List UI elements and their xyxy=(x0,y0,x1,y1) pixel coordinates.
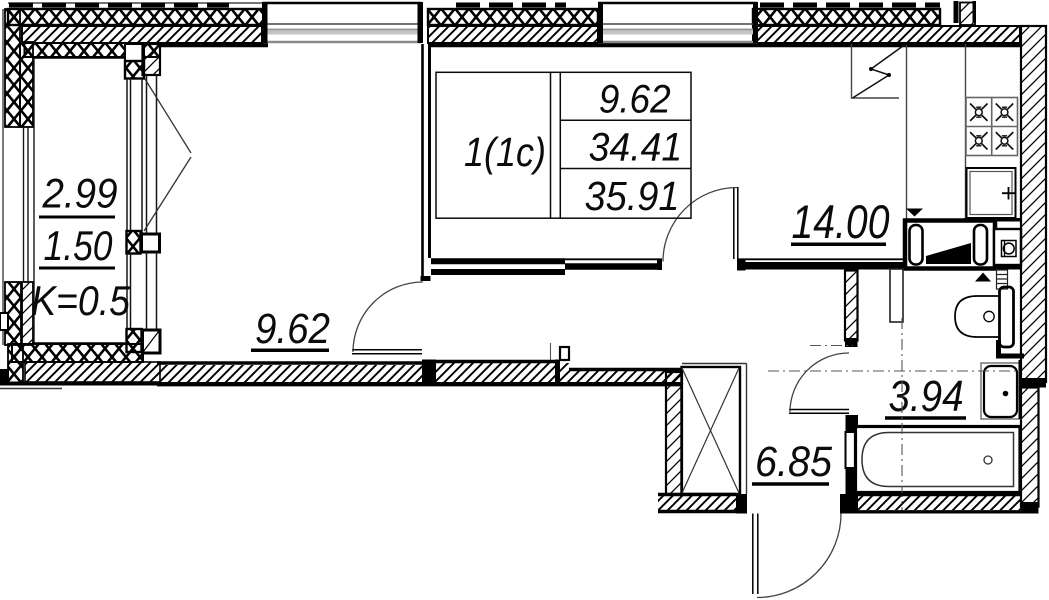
svg-text:9.62: 9.62 xyxy=(599,78,671,122)
svg-text:34.41: 34.41 xyxy=(589,126,683,170)
svg-text:K=0.5: K=0.5 xyxy=(31,277,131,324)
svg-text:14.00: 14.00 xyxy=(792,195,890,248)
svg-text:9.62: 9.62 xyxy=(255,305,330,353)
svg-text:6.85: 6.85 xyxy=(755,438,833,486)
svg-text:1(1c): 1(1c) xyxy=(464,129,546,175)
svg-text:2.99: 2.99 xyxy=(42,170,118,217)
svg-text:35.91: 35.91 xyxy=(585,173,680,219)
svg-text:1.50: 1.50 xyxy=(44,222,114,269)
svg-text:3.94: 3.94 xyxy=(889,372,964,421)
